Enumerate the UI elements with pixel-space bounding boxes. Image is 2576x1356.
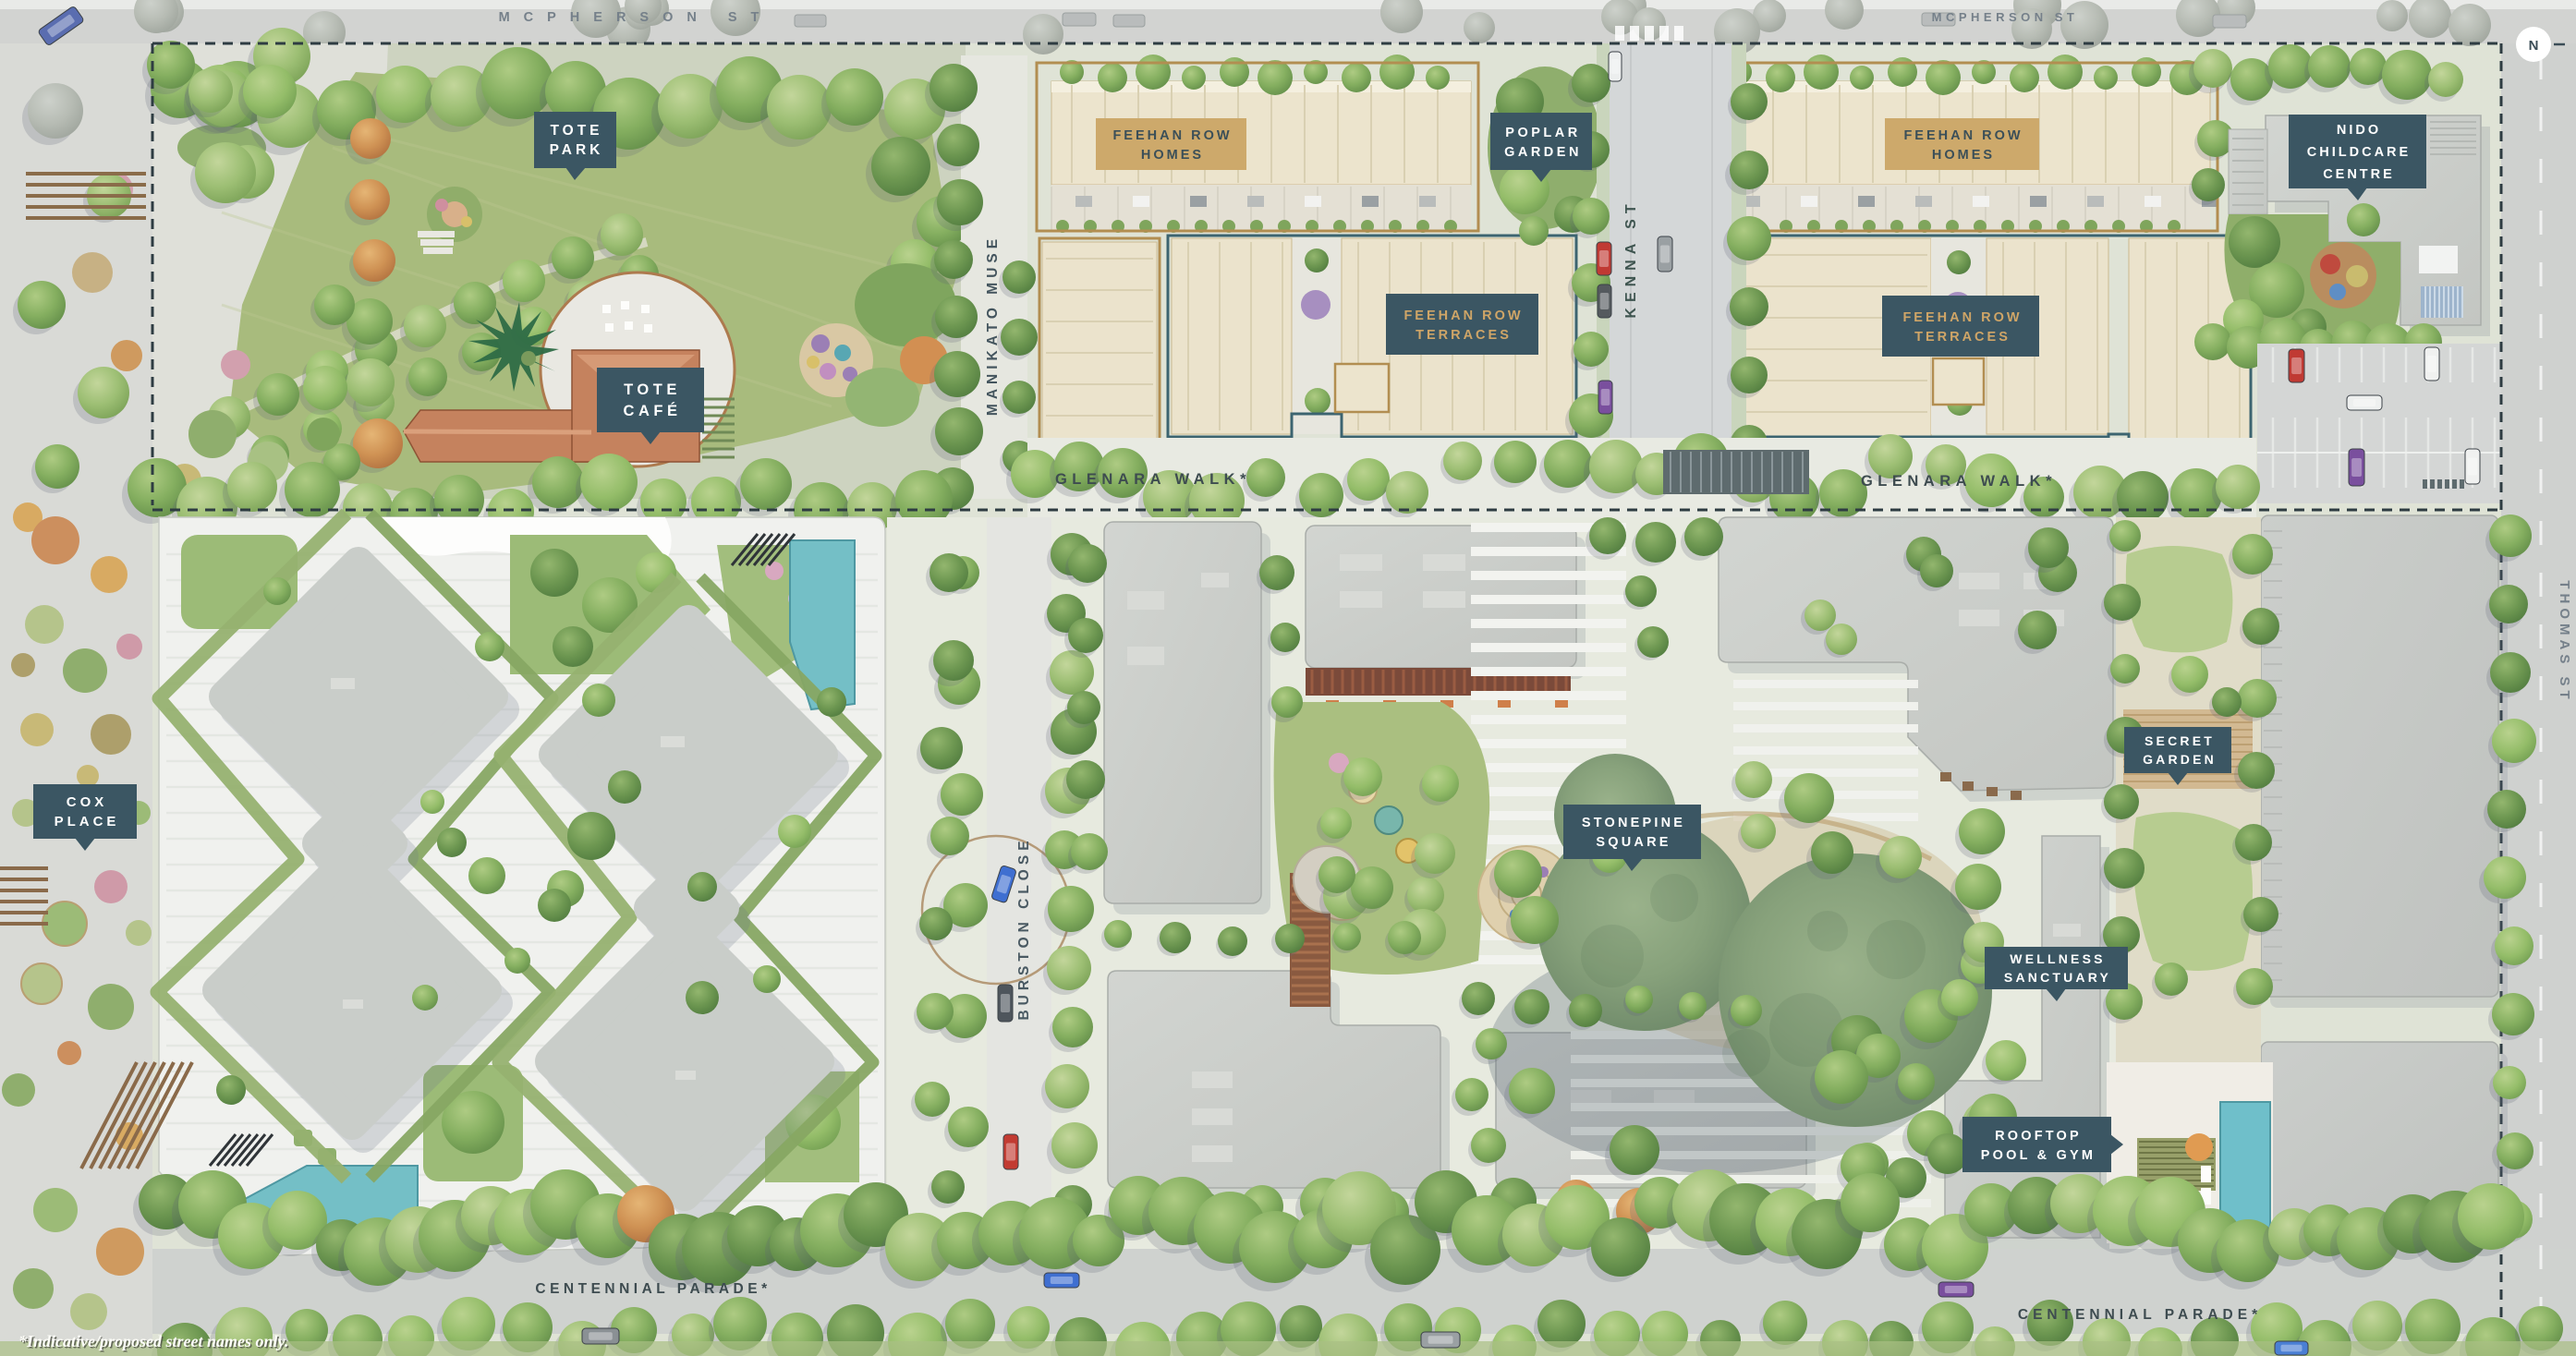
svg-text:MCPHERSON ST: MCPHERSON ST bbox=[499, 10, 773, 25]
svg-text:ROOFTOP: ROOFTOP bbox=[1995, 1129, 2082, 1144]
svg-text:TERRACES: TERRACES bbox=[1416, 328, 1512, 343]
svg-text:*Indicative/proposed street na: *Indicative/proposed street names only. bbox=[18, 1332, 288, 1350]
svg-text:PLACE: PLACE bbox=[55, 814, 120, 829]
svg-text:KENNA ST: KENNA ST bbox=[1623, 199, 1639, 318]
svg-text:CAFÉ: CAFÉ bbox=[624, 402, 682, 419]
svg-text:POOL & GYM: POOL & GYM bbox=[1981, 1148, 2096, 1163]
svg-text:NIDO: NIDO bbox=[2337, 123, 2381, 138]
svg-text:PARK: PARK bbox=[550, 142, 604, 158]
svg-text:SQUARE: SQUARE bbox=[1596, 835, 1671, 850]
svg-text:CENTRE: CENTRE bbox=[2323, 167, 2395, 182]
svg-text:TERRACES: TERRACES bbox=[1914, 330, 2011, 345]
svg-text:POPLAR: POPLAR bbox=[1505, 126, 1580, 140]
svg-text:HOMES: HOMES bbox=[1141, 148, 1204, 163]
svg-text:GLENARA WALK*: GLENARA WALK* bbox=[1055, 471, 1251, 488]
svg-text:MANIKATO MUSE: MANIKATO MUSE bbox=[985, 235, 1001, 416]
svg-text:TOTE: TOTE bbox=[624, 381, 681, 398]
svg-text:HOMES: HOMES bbox=[1932, 148, 1995, 163]
svg-text:SECRET: SECRET bbox=[2145, 733, 2215, 748]
svg-text:FEEHAN ROW: FEEHAN ROW bbox=[1403, 309, 1523, 323]
svg-text:BURSTON CLOSE: BURSTON CLOSE bbox=[1016, 836, 1032, 1020]
svg-text:FEEHAN ROW: FEEHAN ROW bbox=[1112, 128, 1232, 143]
svg-text:FEEHAN ROW: FEEHAN ROW bbox=[1902, 310, 2022, 325]
svg-text:COX: COX bbox=[67, 794, 108, 810]
svg-text:FEEHAN ROW: FEEHAN ROW bbox=[1903, 128, 2023, 143]
svg-text:GARDEN: GARDEN bbox=[1504, 145, 1582, 160]
svg-text:GARDEN: GARDEN bbox=[2143, 752, 2217, 767]
svg-text:CHILDCARE: CHILDCARE bbox=[2307, 145, 2411, 160]
svg-text:TOTE: TOTE bbox=[550, 123, 602, 139]
svg-text:MCPHERSON ST: MCPHERSON ST bbox=[1932, 10, 2079, 24]
svg-text:N: N bbox=[2529, 38, 2539, 54]
svg-text:CENTENNIAL PARADE*: CENTENNIAL PARADE* bbox=[2018, 1307, 2262, 1323]
svg-text:GLENARA WALK*: GLENARA WALK* bbox=[1861, 473, 2057, 490]
svg-text:CENTENNIAL PARADE*: CENTENNIAL PARADE* bbox=[535, 1281, 771, 1297]
svg-text:WELLNESS: WELLNESS bbox=[2010, 951, 2105, 966]
svg-text:SANCTUARY: SANCTUARY bbox=[2004, 970, 2111, 985]
svg-text:THOMAS ST: THOMAS ST bbox=[2557, 580, 2572, 703]
svg-text:STONEPINE: STONEPINE bbox=[1582, 816, 1685, 830]
